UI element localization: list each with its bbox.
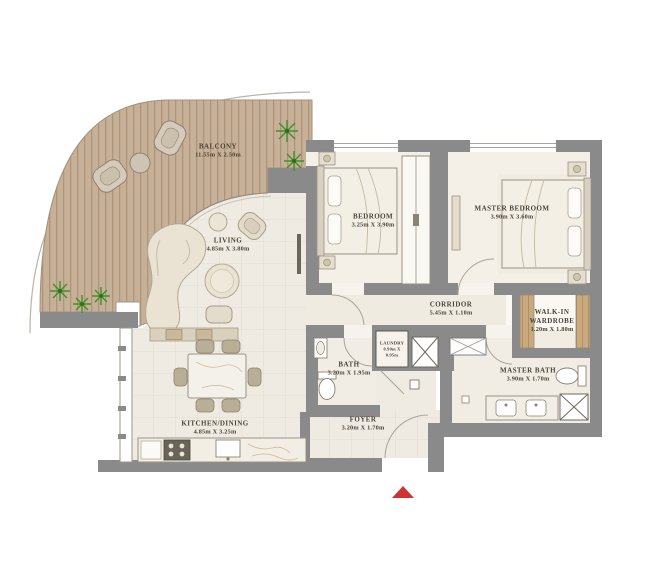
room-label-bath: BATH 3.20m X 1.95m [328, 360, 371, 377]
floor-plan: BALCONY 11.55m X 2.50m LIVING 4.85m X 3.… [0, 0, 660, 572]
bed-icon [502, 178, 591, 270]
credenza-icon [150, 328, 238, 341]
dining-table-icon [188, 354, 246, 398]
room-label-kitchen-dining: KITCHEN/DINING 4.85m X 3.25m [181, 419, 248, 436]
entrance-arrow-icon [392, 486, 414, 498]
stove-icon [164, 440, 190, 460]
room-label-balcony: BALCONY 11.55m X 2.50m [195, 142, 241, 159]
room-label-wardrobe: WALK-IN WARDROBE 1.20m X 1.80m [525, 308, 579, 334]
floor-plan-graphics [0, 0, 660, 572]
shaft-icon [560, 394, 588, 420]
plant-icon [276, 120, 298, 142]
tv-unit-icon [452, 196, 460, 250]
shower-icon [450, 338, 486, 355]
room-label-bedroom: BEDROOM 3.25m X 3.90m [352, 212, 395, 229]
bed-icon [317, 166, 397, 256]
room-label-living: LIVING 4.85m X 3.80m [207, 236, 250, 253]
tv-icon [297, 234, 301, 274]
kitchen-counter [138, 438, 306, 462]
plant-icon [50, 281, 70, 301]
room-label-master-bedroom: MASTER BEDROOM 3.90m X 3.60m [475, 204, 550, 221]
plant-icon [284, 151, 304, 171]
room-label-foyer: FOYER 3.20m X 1.70m [342, 415, 385, 432]
shaft-icon [412, 337, 438, 367]
room-label-master-bath: MASTER BATH 3.90m X 1.70m [500, 366, 556, 383]
closet-icon [402, 156, 430, 284]
room-label-laundry: LAUNDRY 0.90m X 0.95m [378, 340, 407, 357]
side-table-icon [209, 213, 227, 231]
room-label-corridor: CORRIDOR 5.45m X 1.10m [430, 300, 473, 317]
sink-icon [314, 338, 327, 358]
pouf-icon [206, 306, 232, 323]
